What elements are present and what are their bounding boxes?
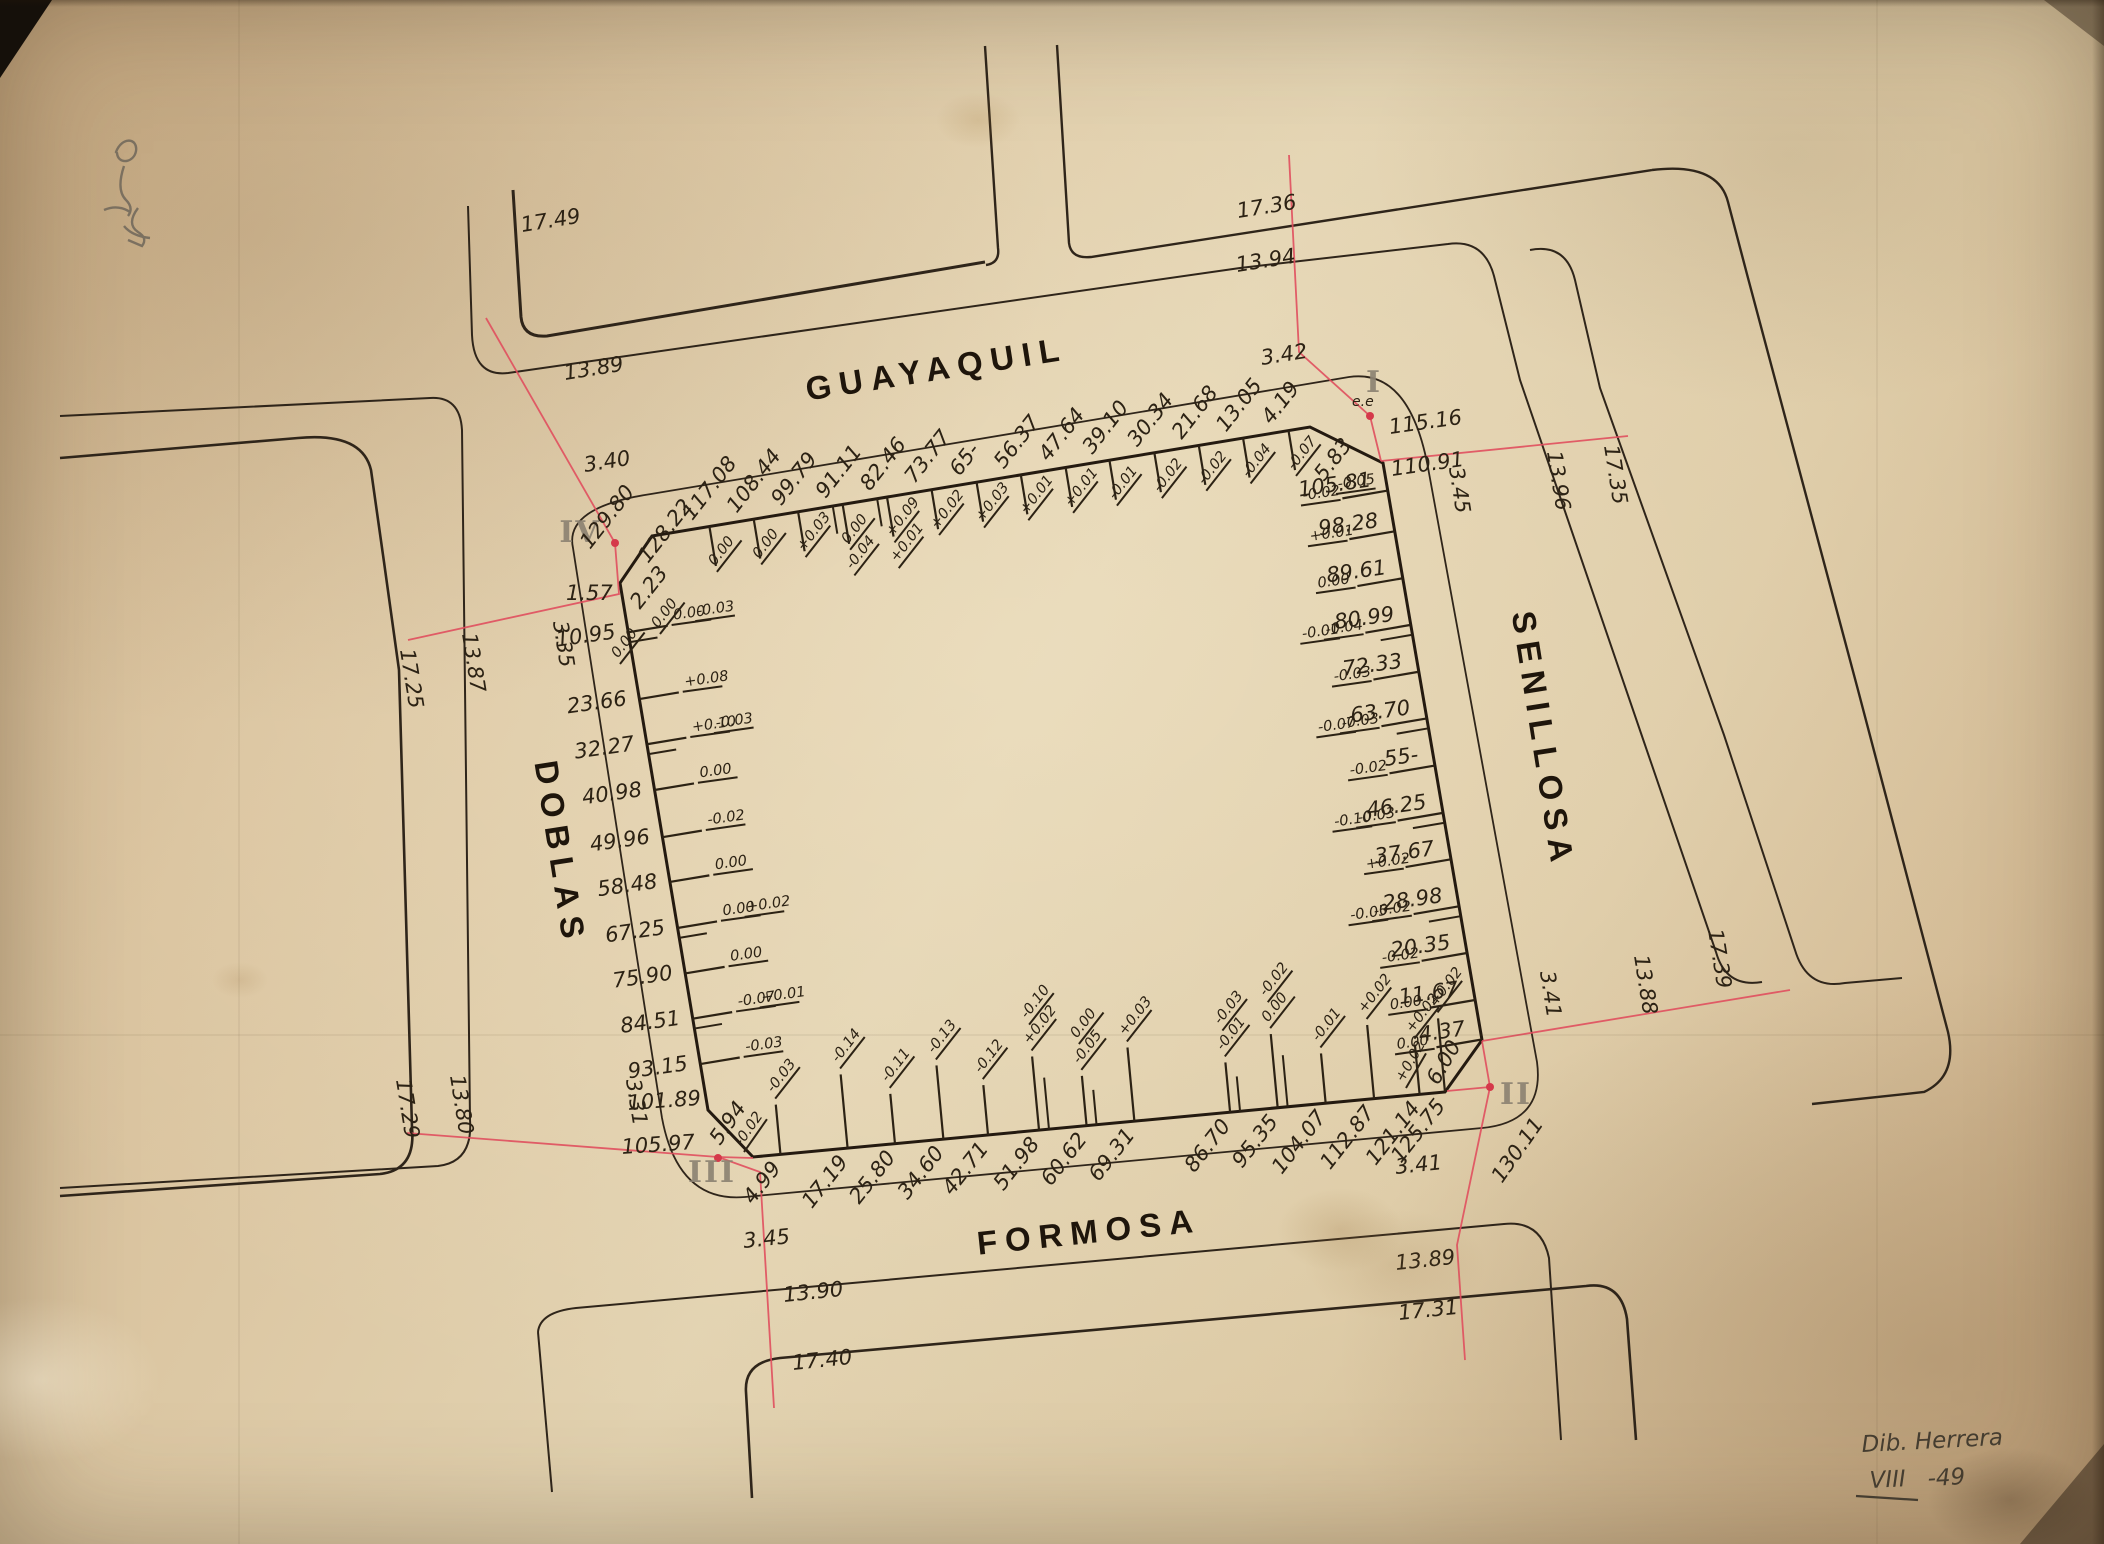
tick-mark	[685, 967, 724, 974]
measurement-label: 17.39	[1703, 927, 1736, 990]
street-near-ring	[572, 376, 1538, 1197]
street-line-east-far	[1530, 249, 1902, 984]
correction-flag: -0.01	[1104, 463, 1142, 505]
street-name: SENILLOSA	[1505, 608, 1582, 871]
correction-flag: -0.03	[1330, 664, 1373, 686]
correction-flag: -0.14	[827, 1026, 865, 1068]
measurement-label: 3.41	[1535, 969, 1566, 1019]
signature-text: VIII	[1869, 1466, 1907, 1494]
tick-mark	[639, 692, 678, 699]
tick-mark	[693, 1012, 732, 1019]
correction-flag: -0.03	[693, 599, 736, 621]
measurement-label: 13.80	[445, 1073, 478, 1136]
tick-mark	[662, 831, 701, 838]
tick-mark	[936, 1065, 943, 1139]
street-line-north-mouth-west	[985, 46, 998, 265]
distance-label: 73.77	[900, 425, 956, 488]
correction-flag: -0.11	[876, 1046, 914, 1088]
paper-fold-line	[0, 1034, 2104, 1036]
measure-mark: 72.33-0.03	[1330, 649, 1419, 687]
distance-label: 86.70	[1179, 1114, 1235, 1176]
measurement-label: 17.49	[519, 204, 582, 237]
correction-flag: +0.02	[742, 893, 791, 916]
distance-label: 4.19	[1256, 377, 1304, 429]
measurement-label: 13.88	[1629, 953, 1662, 1016]
measurement-label: 3.42	[1259, 339, 1309, 370]
tick-mark-secondary	[1093, 1090, 1096, 1125]
correction-flag: +0.01	[757, 984, 806, 1007]
correction-flag: -0.05	[1346, 903, 1389, 925]
measurement-label: e.e	[1352, 394, 1374, 410]
tick-mark	[700, 1057, 739, 1064]
measurement-label: 115.16	[1387, 405, 1463, 439]
survey-plan-canvas: 4.19-0.0713.05-0.0421.68-0.0230.34-0.023…	[0, 0, 2104, 1544]
measure-mark: 98.28+0.01	[1306, 508, 1395, 546]
distance-label: 104.07	[1267, 1105, 1332, 1178]
street-line-north-far	[1057, 45, 1652, 257]
measurement-label: 13.94	[1234, 244, 1297, 277]
distance-label: 17.19	[797, 1150, 853, 1212]
measure-mark: 58.480.00	[596, 852, 753, 901]
measure-mark: 28.98-0.02-0.05	[1346, 883, 1460, 925]
distance-label: 49.96	[588, 824, 651, 856]
correction-flag: -0.12	[969, 1037, 1007, 1079]
measurement-label: 13.89	[562, 352, 625, 385]
tick-mark-secondary	[877, 499, 882, 527]
street-lines	[60, 45, 1950, 1498]
measure-mark: 67.250.00+0.02	[604, 893, 792, 947]
tick-mark	[983, 1085, 988, 1135]
distance-label: 21.68	[1167, 381, 1223, 443]
tick-mark-secondary	[1283, 1055, 1288, 1107]
distance-label: 56.37	[989, 410, 1045, 473]
measurement-label: 13.96	[1542, 449, 1575, 512]
correction-flag: +0.02	[1362, 851, 1411, 874]
measure-mark: 84.51-0.07+0.01	[619, 984, 807, 1038]
measurement-label: 17.31	[1397, 1295, 1459, 1325]
distance-label: 75.90	[611, 961, 674, 993]
correction-flag: -0.03	[712, 711, 755, 733]
correction-flag: -0.13	[923, 1017, 961, 1059]
correction-flag: 0.00	[748, 523, 786, 565]
tick-mark-secondary	[649, 750, 677, 755]
paper-fold-line	[1876, 0, 1878, 1544]
measurement-label: 13.90	[782, 1277, 844, 1307]
correction-flag: -0.02	[703, 807, 746, 829]
tick-mark	[1082, 1076, 1087, 1126]
tick-mark-secondary	[1237, 1076, 1240, 1111]
tick-mark-secondary	[694, 1024, 722, 1029]
measurement-label: 13.89	[1394, 1245, 1456, 1275]
street-line-west-far	[60, 437, 412, 1196]
measure-mark: 49.96-0.02	[588, 807, 746, 856]
correction-flag: +0.02	[1353, 971, 1396, 1019]
measurement-label: 13.87	[457, 631, 490, 695]
distance-label: 51.98	[988, 1132, 1044, 1194]
measure-mark: 89.610.00	[1314, 555, 1403, 593]
correction-label: +0.02	[745, 893, 791, 915]
corner-dot-I	[1366, 412, 1374, 420]
tick-mark	[1032, 1056, 1039, 1130]
distance-label: 58.48	[596, 869, 659, 901]
distance-label: 40.98	[581, 777, 644, 809]
distance-label: 32.27	[573, 731, 637, 763]
correction-flag: -0.01	[1307, 1005, 1345, 1047]
measurement-label: 17.40	[791, 1345, 853, 1375]
correction-flag: -0.03	[762, 1056, 800, 1098]
correction-flag: +0.08	[680, 668, 729, 691]
signature-text: Dib. Herrera	[1861, 1425, 2004, 1458]
measure-mark: 75.900.00	[611, 944, 768, 993]
correction-flag: -0.10	[1330, 809, 1373, 831]
tick-mark	[890, 1094, 895, 1144]
corner-roman-numeral: II	[1500, 1077, 1532, 1112]
correction-flag: -0.02	[1346, 758, 1389, 780]
distance-label: 34.60	[893, 1141, 949, 1203]
measurement-label: 3.40	[582, 446, 632, 477]
correction-flag: -0.02	[1254, 960, 1292, 1002]
measurement-label: 17.35	[1599, 443, 1632, 506]
tick-mark-secondary	[679, 933, 707, 938]
distance-label: 69.31	[1084, 1123, 1140, 1185]
distance-label: 23.66	[565, 686, 628, 718]
measure-mark: 37.67+0.02	[1362, 836, 1451, 874]
correction-flag: -0.07	[1314, 715, 1357, 738]
measurement-label: 101.89	[627, 1086, 702, 1115]
measure-mark: 46.25-0.03-0.10	[1330, 790, 1444, 832]
corner-roman-numeral: III	[688, 1155, 736, 1190]
distance-label: 13.05	[1211, 374, 1267, 436]
measure-mark: 23.66+0.08	[565, 668, 729, 718]
tick-mark-secondary	[1413, 823, 1445, 828]
distance-label: 67.25	[604, 915, 667, 947]
signature-underline	[1856, 1496, 1918, 1500]
correction-flag: -0.03	[741, 1034, 784, 1056]
distance-label: 55-	[1382, 742, 1419, 771]
street-name: GUAYAQUIL	[803, 330, 1069, 408]
correction-label: +0.08	[683, 668, 729, 690]
tick-mark	[776, 1105, 781, 1155]
tick-mark	[1271, 1034, 1278, 1108]
measure-mark: 63.70-0.03-0.07	[1314, 695, 1428, 737]
tick-mark	[1367, 1025, 1374, 1099]
tick-mark	[670, 875, 709, 882]
tick-mark-secondary	[1397, 728, 1429, 733]
distance-label: 30.34	[1122, 388, 1178, 450]
distance-label: 25.80	[844, 1146, 900, 1208]
measure-mark: 80.99-0.04-0.01	[1298, 602, 1412, 644]
correction-flag: -0.02	[1148, 456, 1186, 498]
distance-label: 47.64	[1034, 403, 1090, 465]
street-line-south-far	[746, 1285, 1636, 1498]
correction-flag: +0.01	[1306, 523, 1355, 546]
correction-flag: -0.02	[1378, 945, 1421, 967]
street-line-south-mouth	[538, 1332, 552, 1492]
correction-label: +0.02	[1365, 851, 1411, 873]
tick-mark	[647, 738, 686, 745]
correction-flag: -0.02	[1193, 448, 1231, 490]
tick-mark	[655, 783, 694, 790]
measure-mark: 20.35-0.02	[1378, 930, 1467, 968]
pencil-scribble	[104, 141, 150, 246]
photo-edge-shadow	[2092, 0, 2104, 1544]
distance-label: 39.10	[1077, 396, 1133, 458]
correction-flag: 0.00	[704, 530, 742, 572]
measurement-label: 1.57	[566, 581, 613, 605]
correction-flag: 0.00	[711, 852, 753, 874]
correction-flag: -0.01	[1298, 621, 1341, 643]
tick-mark	[1127, 1048, 1134, 1122]
correction-flag: 0.00	[726, 944, 768, 966]
distance-label: 4.99	[738, 1157, 786, 1209]
street-name: FORMOSA	[975, 1201, 1202, 1261]
measure-mark: 40.980.00	[581, 760, 738, 809]
corner-dot-IV	[611, 539, 619, 547]
measurement-label: 3.45	[742, 1224, 791, 1253]
correction-flag: 0.00	[696, 760, 738, 782]
tick-mark	[841, 1074, 848, 1148]
measurement-label: 17.29	[391, 1077, 424, 1140]
tick-mark-secondary	[1429, 916, 1461, 921]
distance-label: 42.71	[937, 1137, 993, 1199]
measurement-label: 3.41	[1394, 1150, 1443, 1179]
tick-mark-secondary	[1381, 635, 1413, 640]
tick-mark	[678, 921, 717, 928]
distance-label: 91.11	[811, 440, 867, 502]
street-line-west-mid	[60, 398, 470, 1188]
measurement-label: 17.36	[1235, 190, 1298, 223]
signature-text: -49	[1927, 1464, 1966, 1492]
photo-edge-shadow	[0, 0, 2104, 7]
corner-dot-II	[1486, 1083, 1494, 1091]
measure-mark: 55--0.02	[1346, 742, 1435, 780]
correction-label: +0.01	[1309, 523, 1355, 545]
tick-mark	[1321, 1053, 1326, 1103]
distance-label: 82.46	[855, 433, 911, 495]
measurement-label: 130.11	[1486, 1113, 1548, 1187]
distance-label: 60.62	[1036, 1128, 1092, 1190]
tick-mark	[1225, 1062, 1230, 1112]
correction-label: +0.01	[760, 984, 806, 1006]
correction-flag: -0.04	[1237, 441, 1275, 483]
paper-fold-line	[238, 0, 240, 1544]
tick-mark-secondary	[1044, 1078, 1049, 1130]
scanned-plan-page: 4.19-0.0713.05-0.0421.68-0.0230.34-0.023…	[0, 0, 2104, 1544]
